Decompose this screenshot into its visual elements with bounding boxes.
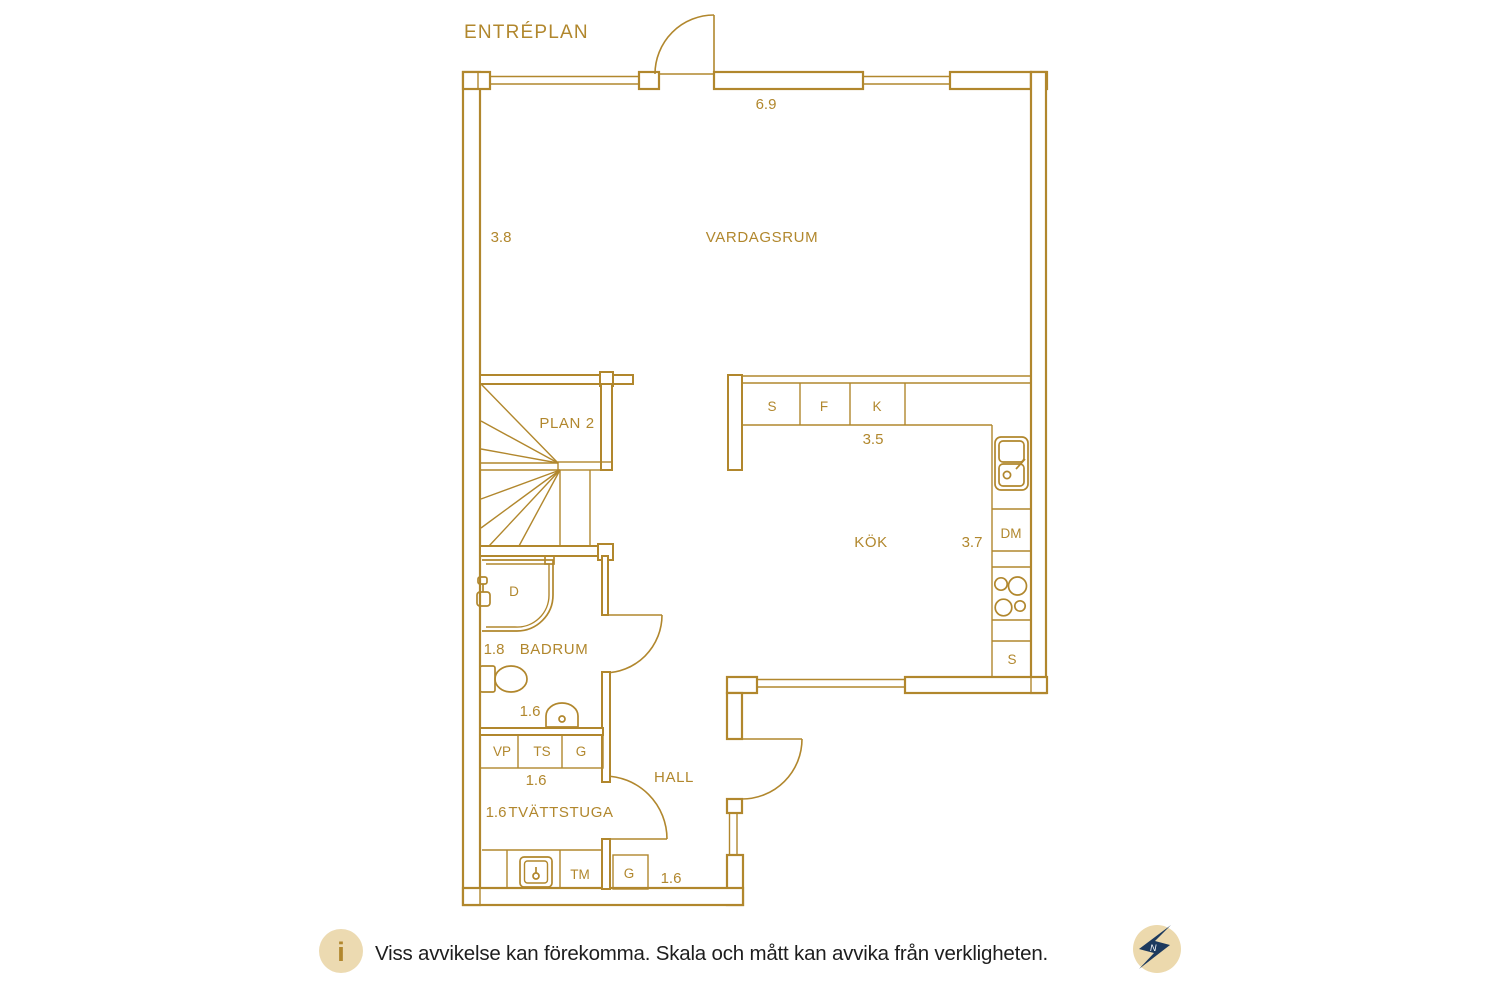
dim-top: 6.9: [756, 96, 777, 113]
dim-hall-bottom: 1.6: [661, 870, 682, 887]
room-label-kok: KÖK: [854, 533, 887, 551]
shower-label-d: D: [509, 584, 519, 599]
top-wall-block-1: [639, 72, 659, 89]
window-block: [727, 677, 757, 693]
badrum-right-wall-upper: [602, 556, 608, 615]
entry-door: [655, 15, 714, 74]
top-wall-block-3: [950, 72, 1031, 89]
laundry-sink-icon: [520, 857, 552, 887]
windows: [490, 77, 950, 856]
room-label-vardagsrum: VARDAGSRUM: [706, 229, 818, 246]
closet-label-ts: TS: [533, 744, 550, 759]
kitchen-sink: [995, 437, 1028, 490]
hall-wall-lower: [602, 839, 610, 889]
room-label-hall: HALL: [654, 769, 694, 786]
dim-left: 3.8: [491, 229, 512, 246]
appliance-label-tm: TM: [570, 867, 590, 882]
top-left-corner: [463, 72, 490, 89]
stove-icon: [995, 577, 1027, 616]
badrum-top-wall: [480, 546, 613, 556]
east-lower-wall-2: [727, 799, 742, 813]
kitchen-bottom-wall: [905, 677, 1047, 693]
kitchen: [742, 376, 1031, 677]
badrum-door: [604, 615, 662, 673]
top-left-window: [490, 77, 639, 85]
washbasin-icon: [546, 703, 578, 727]
dim-kitchen-depth: 3.7: [962, 534, 983, 551]
dim-tvattstuga: 1.6: [486, 804, 507, 821]
footer: i Viss avvikelse kan förekomma. Skala oc…: [319, 925, 1181, 973]
east-lower-wall-1: [727, 693, 742, 739]
right-wall: [1031, 72, 1046, 693]
stair-right-wall: [601, 384, 612, 470]
cabinet-label-s: S: [767, 399, 776, 414]
closet-label-g1: G: [576, 744, 587, 759]
top-wall-block-2: [714, 72, 863, 89]
room-label-plan2: PLAN 2: [539, 415, 594, 432]
doors: [604, 15, 802, 839]
room-label-tvattstuga: TVÄTTSTUGA: [508, 804, 613, 821]
dim-badrum-depth: 1.6: [520, 703, 541, 720]
page-title: ENTRÉPLAN: [464, 22, 589, 43]
room-label-badrum: BADRUM: [520, 641, 589, 658]
disclaimer-text: Viss avvikelse kan förekomma. Skala och …: [375, 942, 1048, 965]
bottom-wall: [463, 888, 743, 905]
badrum-bottom-wall: [480, 728, 603, 735]
hall-back-door: [742, 739, 802, 799]
staircase: [481, 384, 612, 546]
floor-plan-canvas: ENTRÉPLAN 6.9 3.8 VARDAGSRUM PLAN 2 S F …: [0, 0, 1500, 1000]
closet-label-vp: VP: [493, 744, 511, 759]
dim-badrum-width: 1.8: [484, 641, 505, 658]
cabinet-label-f: F: [820, 399, 828, 414]
hall-east-window: [730, 813, 738, 855]
closet-label-s: S: [1007, 652, 1016, 667]
appliance-label-dm: DM: [1001, 526, 1022, 541]
cabinet-label-k: K: [872, 399, 881, 414]
compass-icon: N: [1133, 925, 1181, 973]
closet-label-g2: G: [624, 866, 635, 881]
left-wall: [463, 72, 480, 905]
dim-closet-row: 1.6: [526, 772, 547, 789]
dim-kitchen-width: 3.5: [863, 431, 884, 448]
floor-plan-page: ENTRÉPLAN 6.9 3.8 VARDAGSRUM PLAN 2 S F …: [0, 0, 1500, 1000]
compass-letter: N: [1150, 943, 1157, 953]
stair-tread: [481, 470, 560, 528]
info-icon-letter: i: [337, 937, 345, 967]
info-icon: i: [319, 929, 363, 973]
top-right-window: [863, 77, 950, 85]
stair-tread: [481, 470, 560, 499]
kitchen-south-window: [757, 680, 905, 688]
toilet-icon: [480, 666, 527, 692]
kitchen-stub-wall: [728, 375, 742, 470]
